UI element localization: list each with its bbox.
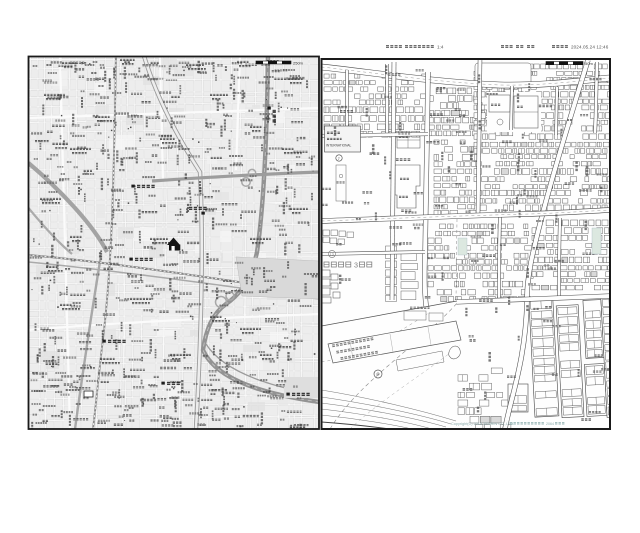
svg-text:2064: 2064 <box>546 422 554 426</box>
svg-text:250m: 250m <box>293 61 304 66</box>
svg-text:Copyright(C) 2013 ZENRIN CO.,L: Copyright(C) 2013 ZENRIN CO.,LTD. <box>451 422 514 426</box>
svg-text:3: 3 <box>354 261 358 270</box>
svg-text:7: 7 <box>338 157 340 161</box>
svg-text:13: 13 <box>330 252 335 257</box>
svg-text:50m: 50m <box>585 61 593 66</box>
svg-text:1:4: 1:4 <box>437 45 444 50</box>
svg-text:2024.05.24 12:46: 2024.05.24 12:46 <box>571 45 609 50</box>
svg-text:INTERNATIONAL: INTERNATIONAL <box>326 144 351 148</box>
